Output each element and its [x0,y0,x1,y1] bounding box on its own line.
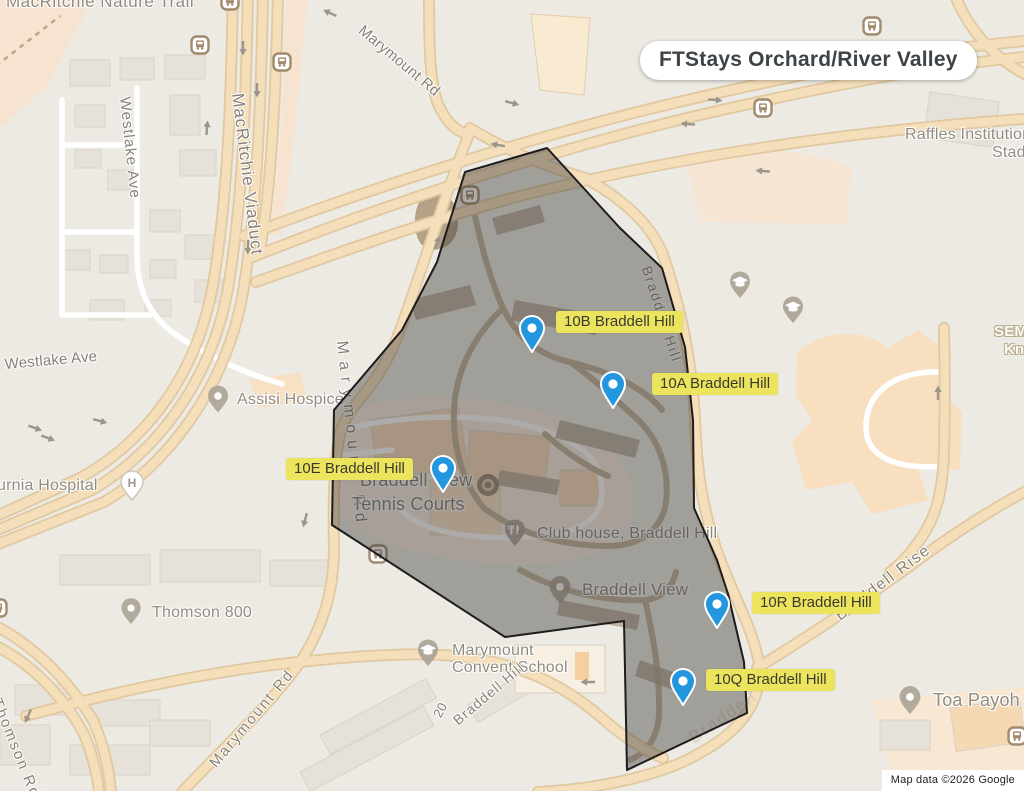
marker-pin-10Q[interactable] [670,668,696,706]
marker-pin-10A[interactable] [600,371,626,409]
marker-pin-10E[interactable] [430,455,456,493]
marker-pin-10B[interactable] [519,315,545,353]
page-title: FTStays Orchard/River Valley [640,41,977,80]
marker-label-10A[interactable]: 10A Braddell Hill [652,373,778,395]
map-attribution: Map data ©2026 Google [882,770,1024,791]
map-canvas[interactable]: H MacRitchie Nature Trail Marymount Rd M… [0,0,1024,791]
marker-label-10Q[interactable]: 10Q Braddell Hill [706,669,835,691]
marker-label-10E[interactable]: 10E Braddell Hill [286,458,413,480]
marker-pin-10R[interactable] [704,591,730,629]
markers-layer: 10B Braddell Hill 10A Braddell Hill 10E … [0,0,1024,791]
marker-label-10R[interactable]: 10R Braddell Hill [752,592,880,614]
marker-label-10B[interactable]: 10B Braddell Hill [556,311,683,333]
